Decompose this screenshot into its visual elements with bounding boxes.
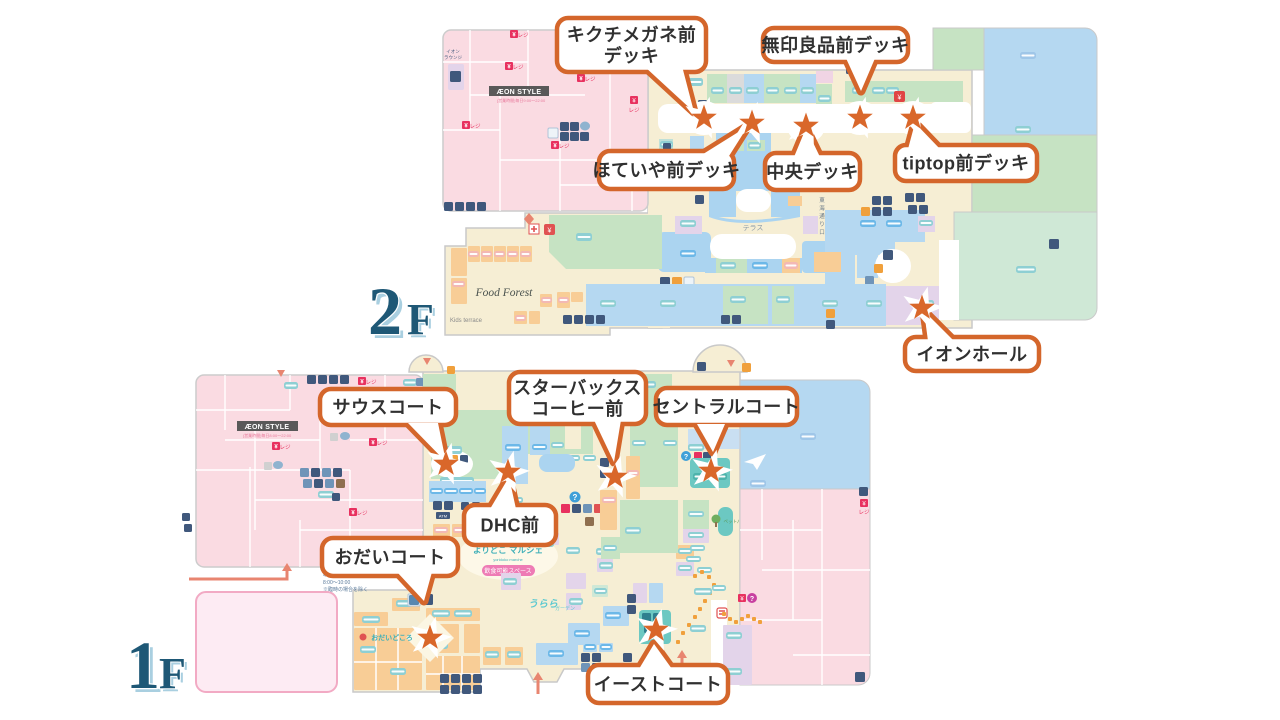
svg-text:口: 口 [819, 229, 825, 236]
svg-text:DHC前: DHC前 [481, 515, 540, 536]
svg-text:レジ: レジ [558, 144, 570, 150]
svg-text:イオン: イオン [446, 49, 460, 54]
svg-text:レジ: レジ [858, 510, 870, 516]
svg-text:中央デッキ: 中央デッキ [766, 161, 859, 182]
svg-text:yoridoko marche: yoridoko marche [493, 557, 523, 562]
svg-text:?: ? [684, 454, 688, 461]
svg-text:通: 通 [819, 212, 825, 220]
svg-text:2: 2 [368, 273, 402, 349]
svg-text:おだいコート: おだいコート [335, 548, 446, 568]
svg-text:レジ: レジ [376, 441, 388, 447]
svg-text:ATM: ATM [439, 514, 447, 519]
svg-text:レジ: レジ [356, 511, 368, 517]
svg-text:tiptop前デッキ: tiptop前デッキ [903, 153, 1030, 174]
svg-text:ガーデン: ガーデン [555, 605, 575, 612]
svg-text:レジ: レジ [584, 77, 596, 83]
svg-text:セントラルコート: セントラルコート [653, 397, 801, 417]
svg-text:レジ: レジ [517, 33, 529, 39]
svg-text:テラス: テラス [743, 224, 764, 232]
svg-text:(営業時間)毎日8:00〜22:00: (営業時間)毎日8:00〜22:00 [243, 432, 292, 438]
svg-text:F: F [407, 295, 434, 344]
svg-text:無印良品前デッキ: 無印良品前デッキ [762, 35, 910, 56]
svg-text:レジ: レジ [279, 445, 291, 451]
svg-text:デッキ: デッキ [604, 45, 660, 66]
svg-text:レジ: レジ [469, 124, 481, 130]
svg-text:り: り [819, 221, 825, 228]
svg-text:?: ? [573, 493, 578, 502]
svg-text:スターバックス: スターバックス [513, 378, 642, 398]
svg-text:おだいどころ: おだいどころ [371, 633, 413, 642]
svg-text:8:00〜10:00: 8:00〜10:00 [323, 580, 350, 586]
svg-text:レジ: レジ [628, 108, 640, 114]
svg-text:ほていや前デッキ: ほていや前デッキ [593, 160, 741, 181]
svg-text:海: 海 [819, 204, 825, 212]
svg-text:ÆON STYLE: ÆON STYLE [497, 89, 542, 96]
svg-text:?: ? [750, 596, 754, 603]
svg-text:イオンホール: イオンホール [917, 345, 1028, 365]
svg-text:うらら: うらら [528, 598, 558, 610]
svg-text:サウスコート: サウスコート [333, 398, 444, 418]
svg-text:Food Forest: Food Forest [475, 287, 534, 299]
svg-text:F: F [159, 649, 186, 698]
svg-text:イーストコート: イーストコート [594, 675, 723, 695]
svg-text:¥: ¥ [548, 228, 552, 235]
svg-text:Kids terrace: Kids terrace [450, 318, 483, 324]
svg-text:¥: ¥ [898, 95, 902, 102]
svg-text:(営業時間)毎日9:00〜22:00: (営業時間)毎日9:00〜22:00 [497, 97, 546, 103]
svg-text:レジ: レジ [365, 380, 377, 386]
svg-text:東: 東 [819, 196, 825, 204]
svg-text:1: 1 [126, 627, 160, 703]
svg-text:ラウンジ: ラウンジ [444, 54, 462, 61]
svg-text:コーヒー前: コーヒー前 [531, 398, 624, 419]
svg-text:キクチメガネ前: キクチメガネ前 [567, 24, 697, 45]
svg-text:レジ: レジ [512, 65, 524, 71]
svg-text:ÆON STYLE: ÆON STYLE [245, 424, 290, 431]
